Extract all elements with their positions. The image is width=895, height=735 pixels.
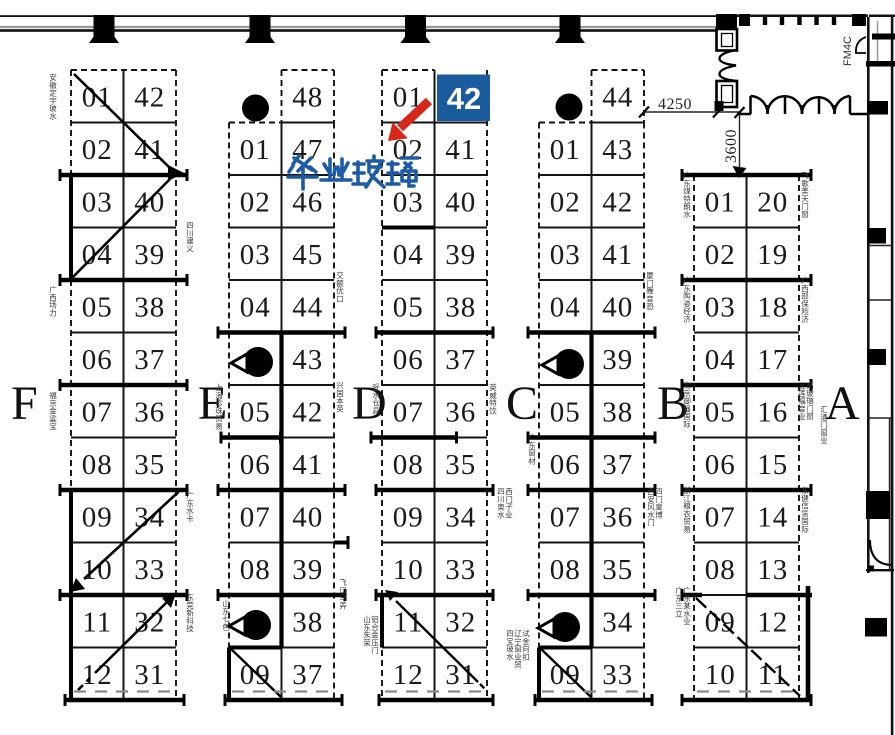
svg-text:07: 07 (705, 501, 736, 533)
svg-text:12: 12 (393, 659, 424, 691)
svg-text:43: 43 (602, 134, 633, 166)
svg-text:40: 40 (445, 186, 476, 218)
svg-text:广东陶姿经济: 广东陶姿经济 (683, 275, 691, 324)
svg-text:39: 39 (292, 554, 323, 586)
svg-text:06: 06 (705, 449, 736, 481)
svg-text:42: 42 (134, 81, 165, 113)
svg-text:39: 39 (134, 239, 165, 271)
svg-text:17: 17 (757, 344, 788, 376)
svg-text:31: 31 (134, 659, 165, 691)
svg-text:33: 33 (602, 659, 633, 691)
svg-text:38: 38 (292, 606, 323, 638)
svg-text:四川奥水: 四川奥水 (497, 487, 505, 519)
svg-text:09: 09 (393, 501, 424, 533)
svg-text:44: 44 (292, 291, 323, 323)
svg-text:广东某水业: 广东某水业 (683, 585, 691, 626)
svg-text:09: 09 (550, 659, 581, 691)
svg-text:03: 03 (240, 239, 271, 271)
svg-text:41: 41 (292, 449, 323, 481)
svg-text:04: 04 (393, 239, 424, 271)
svg-text:厦门舞音恐: 厦门舞音恐 (646, 271, 654, 311)
svg-text:10: 10 (705, 659, 736, 691)
svg-text:广西部保险济: 广西部保险济 (801, 275, 809, 324)
svg-text:12: 12 (82, 659, 113, 691)
svg-text:浙江粮衣贸易: 浙江粮衣贸易 (683, 485, 691, 534)
svg-text:04: 04 (240, 291, 271, 323)
svg-text:02: 02 (240, 186, 271, 218)
svg-text:34: 34 (445, 501, 476, 533)
svg-text:广东煤特朗水: 广东煤特朗水 (683, 170, 691, 219)
svg-text:48: 48 (292, 81, 323, 113)
svg-text:36: 36 (445, 396, 476, 428)
svg-text:04: 04 (82, 239, 113, 271)
svg-text:4250: 4250 (658, 96, 692, 113)
svg-text:20: 20 (757, 186, 788, 218)
svg-text:32: 32 (134, 606, 165, 638)
svg-text:山东七色: 山东七色 (222, 598, 230, 631)
svg-text:07: 07 (240, 501, 271, 533)
svg-text:08: 08 (240, 554, 271, 586)
svg-text:38: 38 (445, 291, 476, 323)
svg-text:42: 42 (292, 396, 323, 428)
svg-text:F: F (11, 377, 38, 430)
svg-text:08: 08 (82, 449, 113, 481)
svg-text:43: 43 (292, 344, 323, 376)
svg-text:3600: 3600 (723, 129, 740, 163)
svg-text:02: 02 (82, 134, 113, 166)
svg-text:四门皇博: 四门皇博 (655, 487, 663, 519)
svg-text:英威特饮: 英威特饮 (489, 382, 497, 415)
svg-text:08: 08 (393, 449, 424, 481)
svg-text:01: 01 (550, 134, 581, 166)
svg-text:18: 18 (757, 291, 788, 323)
svg-text:16: 16 (757, 396, 788, 428)
svg-text:西门子业: 西门子业 (505, 487, 513, 519)
svg-text:五莲福音业: 五莲福音业 (798, 381, 806, 421)
svg-text:高玻璃门窗: 高玻璃门窗 (806, 380, 814, 421)
svg-text:07: 07 (82, 396, 113, 428)
svg-text:广东水卡: 广东水卡 (186, 490, 194, 523)
svg-text:38: 38 (134, 291, 165, 323)
svg-text:04: 04 (705, 344, 736, 376)
svg-text:10: 10 (82, 554, 113, 586)
svg-text:36: 36 (602, 501, 633, 533)
svg-text:01: 01 (705, 186, 736, 218)
svg-text:北京御强国际: 北京御强国际 (683, 381, 691, 429)
svg-text:02: 02 (550, 186, 581, 218)
svg-text:交额优口: 交额优口 (336, 270, 344, 303)
svg-text:42: 42 (602, 186, 633, 218)
svg-text:铝合金压门: 铝合金压门 (371, 614, 379, 655)
svg-text:37: 37 (602, 449, 633, 481)
svg-text:37: 37 (445, 344, 476, 376)
svg-text:03: 03 (550, 239, 581, 271)
svg-text:01: 01 (240, 134, 271, 166)
svg-text:广西场力: 广西场力 (49, 284, 57, 317)
svg-text:A: A (825, 377, 860, 430)
svg-text:05: 05 (82, 291, 113, 323)
svg-text:四川建义: 四川建义 (186, 221, 194, 253)
svg-text:E: E (198, 377, 227, 430)
svg-text:08: 08 (705, 554, 736, 586)
svg-text:44: 44 (602, 81, 633, 113)
svg-text:40: 40 (134, 186, 165, 218)
svg-text:11: 11 (758, 659, 788, 691)
svg-text:09: 09 (240, 659, 271, 691)
svg-text:上海珍珠贸易: 上海珍珠贸易 (215, 383, 223, 431)
svg-text:飞口马弄: 飞口马弄 (339, 578, 347, 610)
svg-text:05: 05 (705, 396, 736, 428)
svg-text:广东窗材: 广东窗材 (528, 432, 536, 465)
svg-text:C: C (506, 377, 538, 430)
svg-text:11: 11 (82, 606, 112, 638)
svg-text:35: 35 (134, 449, 165, 481)
svg-text:山东朱荣: 山东朱荣 (363, 614, 371, 647)
svg-text:广东三立: 广东三立 (675, 585, 683, 618)
svg-text:33: 33 (445, 554, 476, 586)
svg-text:10: 10 (393, 554, 424, 586)
svg-text:07: 07 (550, 501, 581, 533)
svg-text:03: 03 (705, 291, 736, 323)
svg-text:兴国本英: 兴国本英 (336, 381, 344, 413)
svg-text:D: D (352, 377, 387, 430)
svg-text:42: 42 (447, 81, 481, 116)
svg-text:35: 35 (445, 449, 476, 481)
svg-text:35: 35 (602, 554, 633, 586)
svg-text:05: 05 (550, 396, 581, 428)
svg-text:37: 37 (292, 659, 323, 691)
svg-text:40: 40 (292, 501, 323, 533)
svg-text:37: 37 (134, 344, 165, 376)
svg-text:东莞新科技: 东莞新科技 (186, 592, 194, 633)
svg-text:飞歌美天门窗: 飞歌美天门窗 (801, 171, 809, 219)
svg-text:西安风水门: 西安风水门 (647, 487, 655, 527)
svg-text:34: 34 (602, 606, 633, 638)
svg-text:08: 08 (550, 554, 581, 586)
svg-text:32: 32 (445, 606, 476, 638)
svg-text:06: 06 (240, 449, 271, 481)
svg-text:受水仓具: 受水仓具 (372, 382, 380, 415)
svg-text:09: 09 (82, 501, 113, 533)
svg-text:15: 15 (757, 449, 788, 481)
svg-text:07: 07 (393, 396, 424, 428)
svg-text:东健信赁国际: 东健信赁国际 (801, 485, 809, 534)
svg-text:40: 40 (602, 291, 633, 323)
svg-text:33: 33 (134, 554, 165, 586)
svg-text:41: 41 (445, 134, 476, 166)
svg-text:安徽定宇玻水: 安徽定宇玻水 (49, 72, 57, 121)
svg-text:03: 03 (393, 186, 424, 218)
svg-text:19: 19 (757, 239, 788, 271)
svg-text:45: 45 (292, 239, 323, 271)
svg-text:39: 39 (602, 344, 633, 376)
svg-text:13: 13 (757, 554, 788, 586)
svg-text:福京金粱宝: 福京金粱宝 (49, 391, 57, 431)
svg-text:04: 04 (550, 291, 581, 323)
svg-text:试金向扣: 试金向扣 (522, 628, 530, 661)
svg-text:02: 02 (705, 239, 736, 271)
svg-text:辽宁窗业贸: 辽宁窗业贸 (514, 629, 522, 669)
svg-text:41: 41 (602, 239, 633, 271)
svg-text:36: 36 (134, 396, 165, 428)
svg-text:05: 05 (240, 396, 271, 428)
svg-text:四宝玻水: 四宝玻水 (506, 629, 514, 661)
svg-text:14: 14 (757, 501, 788, 533)
svg-text:12: 12 (757, 606, 788, 638)
svg-text:FM4C: FM4C (842, 36, 854, 66)
svg-text:39: 39 (445, 239, 476, 271)
svg-text:38: 38 (602, 396, 633, 428)
svg-text:06: 06 (82, 344, 113, 376)
svg-text:汇通门窗业: 汇通门窗业 (820, 405, 828, 445)
svg-text:06: 06 (550, 449, 581, 481)
svg-text:46: 46 (292, 186, 323, 218)
svg-text:09: 09 (705, 606, 736, 638)
svg-text:06: 06 (393, 344, 424, 376)
svg-text:03: 03 (82, 186, 113, 218)
svg-text:05: 05 (393, 291, 424, 323)
